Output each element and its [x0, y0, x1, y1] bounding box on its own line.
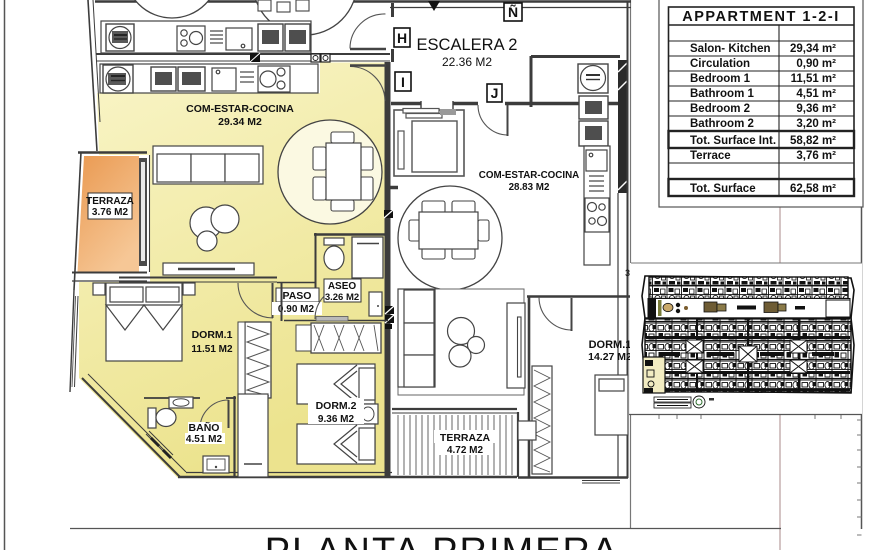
svg-text:4,51 m²: 4,51 m²: [796, 88, 836, 100]
svg-text:4.51 M2: 4.51 M2: [186, 434, 223, 445]
svg-text:22.36 M2: 22.36 M2: [442, 55, 492, 69]
svg-text:29,34 m²: 29,34 m²: [790, 43, 836, 55]
svg-text:BAÑO: BAÑO: [189, 421, 220, 434]
svg-text:I: I: [401, 74, 405, 90]
svg-text:11.51 M2: 11.51 M2: [191, 344, 233, 355]
svg-text:Terrace: Terrace: [690, 150, 731, 162]
svg-text:APPARTMENT 1-2-I: APPARTMENT 1-2-I: [682, 9, 839, 25]
svg-text:0.90 M2: 0.90 M2: [278, 304, 315, 315]
svg-text:9,36 m²: 9,36 m²: [796, 103, 836, 115]
svg-text:J: J: [491, 85, 499, 101]
svg-text:58,82 m²: 58,82 m²: [790, 135, 836, 147]
svg-text:Bedroom 1: Bedroom 1: [690, 73, 751, 85]
svg-text:DORM.2: DORM.2: [316, 400, 357, 412]
svg-text:3.76 M2: 3.76 M2: [92, 207, 129, 218]
svg-text:Circulation: Circulation: [690, 58, 750, 70]
svg-text:Salon- Kitchen: Salon- Kitchen: [690, 43, 771, 55]
svg-text:COM-ESTAR-COCINA: COM-ESTAR-COCINA: [479, 170, 580, 181]
svg-text:3.26 M2: 3.26 M2: [325, 292, 359, 303]
svg-text:11,51 m²: 11,51 m²: [791, 73, 837, 85]
svg-text:3,76 m²: 3,76 m²: [796, 150, 836, 162]
svg-text:Tot. Surface Int.: Tot. Surface Int.: [690, 135, 776, 147]
svg-text:14.27 M2: 14.27 M2: [588, 351, 632, 363]
svg-text:TERRAZA: TERRAZA: [440, 432, 491, 444]
svg-text:Bathroom 2: Bathroom 2: [690, 118, 754, 130]
svg-text:H: H: [397, 30, 407, 46]
svg-text:Bathroom 1: Bathroom 1: [690, 88, 755, 100]
svg-text:Tot. Surface: Tot. Surface: [690, 183, 756, 195]
svg-text:ASEO: ASEO: [328, 281, 357, 292]
svg-text:62,58 m²: 62,58 m²: [790, 183, 836, 195]
svg-text:PLANTA PRIMERA: PLANTA PRIMERA: [265, 531, 620, 550]
svg-text:29.34 M2: 29.34 M2: [218, 116, 262, 128]
svg-text:DORM.1: DORM.1: [589, 339, 632, 351]
svg-text:DORM.1: DORM.1: [192, 329, 233, 341]
svg-text:TERRAZA: TERRAZA: [86, 196, 134, 207]
svg-text:Bedroom 2: Bedroom 2: [690, 103, 750, 115]
svg-text:9.36 M2: 9.36 M2: [318, 414, 355, 425]
svg-text:PASO: PASO: [283, 290, 312, 302]
svg-text:COM-ESTAR-COCINA: COM-ESTAR-COCINA: [186, 103, 294, 115]
svg-text:0,90 m²: 0,90 m²: [796, 58, 836, 70]
svg-text:28.83 M2: 28.83 M2: [509, 182, 550, 193]
svg-text:Ñ: Ñ: [508, 3, 518, 20]
svg-text:3,20 m²: 3,20 m²: [796, 118, 836, 130]
svg-text:ESCALERA 2: ESCALERA 2: [417, 36, 518, 54]
svg-text:4.72 M2: 4.72 M2: [447, 445, 484, 456]
